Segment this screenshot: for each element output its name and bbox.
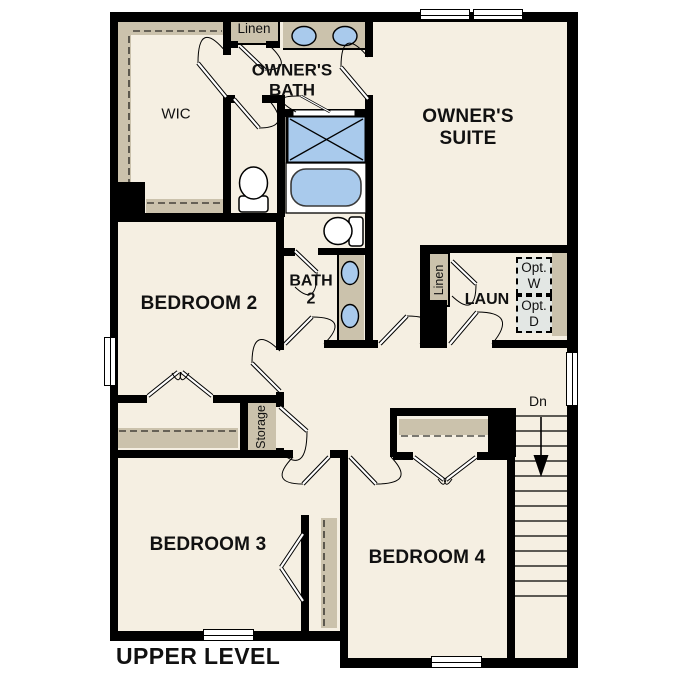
stairs-down-label: Dn [529,393,547,409]
owners-suite-line1: OWNER'S [422,106,513,128]
storage-label: Storage [254,405,268,449]
owners-bath-label: OWNER'S BATH [252,60,333,99]
owners-bath-line1: OWNER'S [252,60,333,80]
bath2-label: BATH 2 [289,273,332,310]
bedroom3-label: BEDROOM 3 [150,534,267,556]
floor-plan: WIC OWNER'S BATH OWNER'S SUITE BEDROOM 2… [0,0,687,687]
linen-laundry-label: Linen [432,265,446,296]
toilet-icon [324,217,363,246]
wic-label: WIC [161,105,190,122]
bedroom4-label: BEDROOM 4 [369,547,486,569]
shower-icon [287,110,366,163]
plan-title: UPPER LEVEL [116,643,280,670]
bathtub-icon [286,163,366,213]
owners-bath-line2: BATH [252,80,333,100]
opt-d-line2: D [521,314,547,330]
opt-w-line1: Opt. [521,260,547,276]
laundry-label: LAUN [465,291,509,309]
stair-direction-arrow [534,417,549,477]
optional-washer-label: Opt. W [521,260,547,292]
optional-dryer-label: Opt. D [521,298,547,330]
bedroom2-label: BEDROOM 2 [141,293,258,315]
bath2-line1: BATH [289,273,332,291]
opt-d-line1: Opt. [521,298,547,314]
linen-upper-label: Linen [237,21,270,37]
fixtures-layer [0,0,687,687]
toilet-icon [239,167,268,212]
opt-w-line2: W [521,276,547,292]
bath2-line2: 2 [289,291,332,309]
owners-suite-line2: SUITE [422,128,513,150]
owners-suite-label: OWNER'S SUITE [422,106,513,150]
